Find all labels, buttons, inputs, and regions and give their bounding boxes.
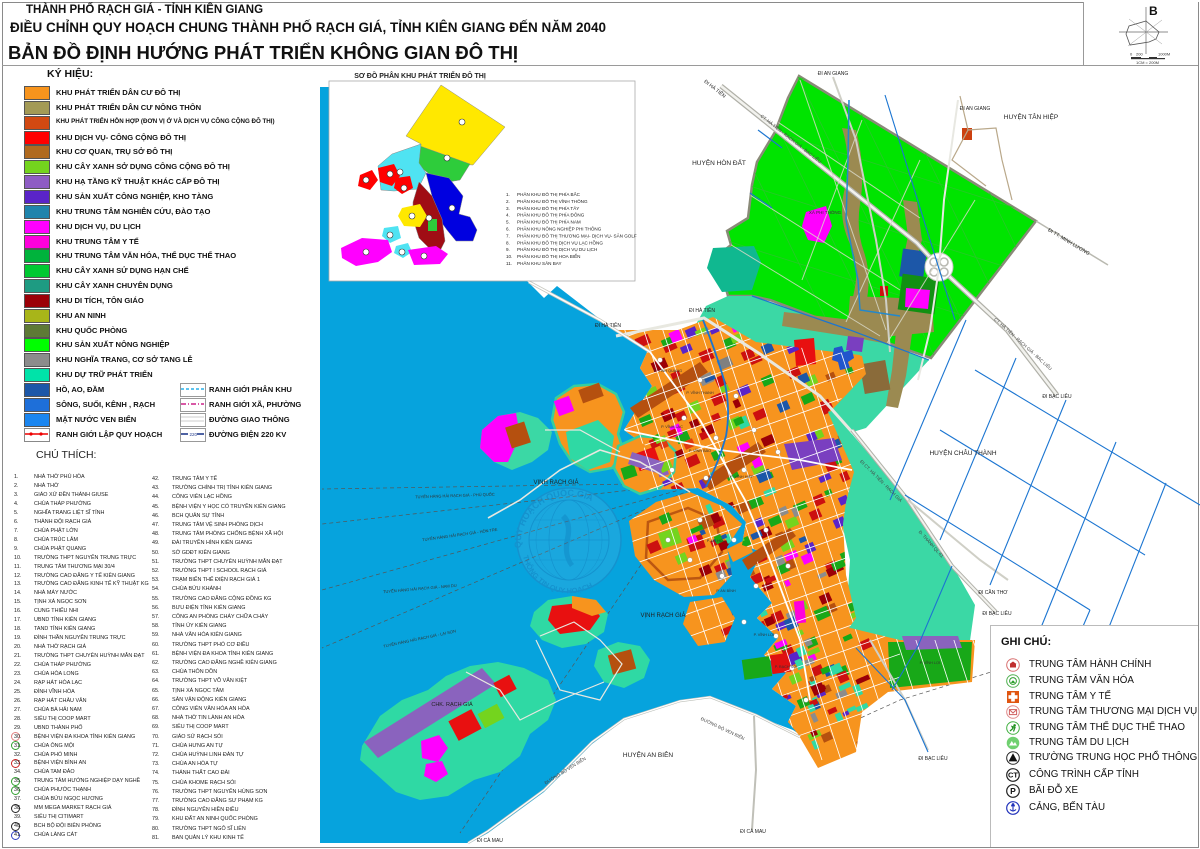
svg-text:2.: 2. xyxy=(506,199,510,204)
svg-text:5.: 5. xyxy=(506,220,510,225)
svg-text:1000M: 1000M xyxy=(1158,52,1170,57)
svg-text:P. VĨNH BẢO: P. VĨNH BẢO xyxy=(689,448,711,453)
svg-text:XÃ PHI THÔNG: XÃ PHI THÔNG xyxy=(809,209,842,215)
svg-text:8.: 8. xyxy=(506,240,510,245)
svg-text:P. VĨNH HIỆP: P. VĨNH HIỆP xyxy=(730,474,754,479)
svg-text:PHÂN KHU ĐÔ THỊ HOA BIỂN: PHÂN KHU ĐÔ THỊ HOA BIỂN xyxy=(517,253,580,259)
svg-text:PHÂN KHU SÂN BAY: PHÂN KHU SÂN BAY xyxy=(517,260,562,266)
svg-text:P. AN HÒA: P. AN HÒA xyxy=(707,538,726,543)
svg-text:6.: 6. xyxy=(506,227,510,232)
svg-text:VỊNH RẠCH GIÁ: VỊNH RẠCH GIÁ xyxy=(640,612,685,619)
svg-text:P. VĨNH QUANG: P. VĨNH QUANG xyxy=(654,368,682,373)
svg-text:PHÂN KHU ĐÔ THỊ PHÍA NAM: PHÂN KHU ĐÔ THỊ PHÍA NAM xyxy=(517,219,581,225)
svg-text:11.: 11. xyxy=(506,261,512,266)
svg-text:SƠ ĐỒ PHÂN KHU PHÁT TRIỂN ĐÔ T: SƠ ĐỒ PHÂN KHU PHÁT TRIỂN ĐÔ THỊ xyxy=(354,70,486,80)
svg-text:P. AN BÌNH: P. AN BÌNH xyxy=(716,589,736,593)
svg-text:P. RẠCH SỎI: P. RẠCH SỎI xyxy=(775,664,798,669)
svg-text:7.: 7. xyxy=(506,233,510,238)
svg-text:ĐI BẠC LIÊU: ĐI BẠC LIÊU xyxy=(982,609,1012,617)
svg-text:PHÂN KHU ĐÔ THỊ DỊCH VỤ DU LỊC: PHÂN KHU ĐÔ THỊ DỊCH VỤ DU LỊCH xyxy=(517,246,597,252)
svg-text:PHÂN KHU ĐÔ THỊ DỊCH VỤ LẠC HỒ: PHÂN KHU ĐÔ THỊ DỊCH VỤ LẠC HỒNG xyxy=(517,239,603,245)
svg-text:HUYỆN TÂN HIỆP: HUYỆN TÂN HIỆP xyxy=(1004,112,1058,121)
svg-text:P. VĨNH LỢI: P. VĨNH LỢI xyxy=(920,660,941,665)
svg-text:P. VĨNH LỢI: P. VĨNH LỢI xyxy=(754,632,775,637)
svg-text:HUYỆN HÒN ĐẤT: HUYỆN HÒN ĐẤT xyxy=(692,157,746,167)
svg-text:4.: 4. xyxy=(506,213,510,218)
svg-text:ĐƯỜNG BỘ VEN BIỂN: ĐƯỜNG BỘ VEN BIỂN xyxy=(700,715,746,741)
svg-text:CT: CT xyxy=(1008,771,1018,780)
svg-text:200: 200 xyxy=(1136,52,1143,57)
svg-text:10.: 10. xyxy=(506,254,512,259)
svg-text:ĐI HÀ TIÊN: ĐI HÀ TIÊN xyxy=(595,321,621,329)
svg-text:ĐI CÀ MAU: ĐI CÀ MAU xyxy=(477,837,503,844)
svg-text:ĐI BẠC LIÊU: ĐI BẠC LIÊU xyxy=(1042,392,1072,400)
svg-text:P. VĨNH LẠC: P. VĨNH LẠC xyxy=(661,424,683,429)
svg-text:PHÂN KHU ĐÔ THỊ VĨNH THÔNG: PHÂN KHU ĐÔ THỊ VĨNH THÔNG xyxy=(517,198,588,204)
svg-text:PHÂN KHU NÔNG NGHIỆP PHI THÔNG: PHÂN KHU NÔNG NGHIỆP PHI THÔNG xyxy=(517,225,602,232)
svg-text:CHK. RẠCH GIÁ: CHK. RẠCH GIÁ xyxy=(431,701,473,708)
svg-text:9.: 9. xyxy=(506,247,510,252)
svg-text:PHÂN KHU ĐÔ THỊ THƯƠNG MẠI- DỊ: PHÂN KHU ĐÔ THỊ THƯƠNG MẠI- DỊCH VỤ- SÂN… xyxy=(517,232,637,238)
svg-text:PHÂN KHU ĐÔ THỊ PHÍA BẮC: PHÂN KHU ĐÔ THỊ PHÍA BẮC xyxy=(517,190,581,197)
svg-text:1.: 1. xyxy=(506,192,510,197)
svg-text:ĐI BẠC LIÊU: ĐI BẠC LIÊU xyxy=(918,754,948,762)
svg-text:3.: 3. xyxy=(506,206,510,211)
svg-text:HUYỆN CHÂU THÀNH: HUYỆN CHÂU THÀNH xyxy=(929,448,996,457)
svg-text:B: B xyxy=(1149,4,1158,18)
svg-text:1CM = 200M: 1CM = 200M xyxy=(1136,60,1159,65)
svg-text:P. VĨNH THANH: P. VĨNH THANH xyxy=(686,390,714,395)
svg-text:HUYỆN AN BIÊN: HUYỆN AN BIÊN xyxy=(623,750,674,759)
svg-text:ĐI TT. MINH LƯƠNG: ĐI TT. MINH LƯƠNG xyxy=(1047,227,1091,257)
svg-text:0: 0 xyxy=(1130,52,1133,57)
svg-text:ĐI AN GIANG: ĐI AN GIANG xyxy=(960,106,991,112)
svg-text:ĐI HÀ TIÊN: ĐI HÀ TIÊN xyxy=(689,306,715,314)
svg-text:ĐI AN GIANG: ĐI AN GIANG xyxy=(818,71,849,77)
svg-text:VỊNH RẠCH GIÁ: VỊNH RẠCH GIÁ xyxy=(533,479,578,486)
svg-text:PHÂN KHU ĐÔ THỊ PHÍA ĐÔNG: PHÂN KHU ĐÔ THỊ PHÍA ĐÔNG xyxy=(517,212,585,218)
svg-text:CT. HÀ TIÊN - RẠCH GIÁ - BẠC L: CT. HÀ TIÊN - RẠCH GIÁ - BẠC LIÊU xyxy=(993,315,1054,371)
svg-text:ĐI CẦN THƠ: ĐI CẦN THƠ xyxy=(978,589,1008,596)
svg-text:P: P xyxy=(1010,786,1016,796)
svg-text:ĐI CÀ MAU: ĐI CÀ MAU xyxy=(740,828,766,835)
svg-text:PHÂN KHU ĐÔ THỊ PHÍA TÂY: PHÂN KHU ĐÔ THỊ PHÍA TÂY xyxy=(517,205,579,211)
